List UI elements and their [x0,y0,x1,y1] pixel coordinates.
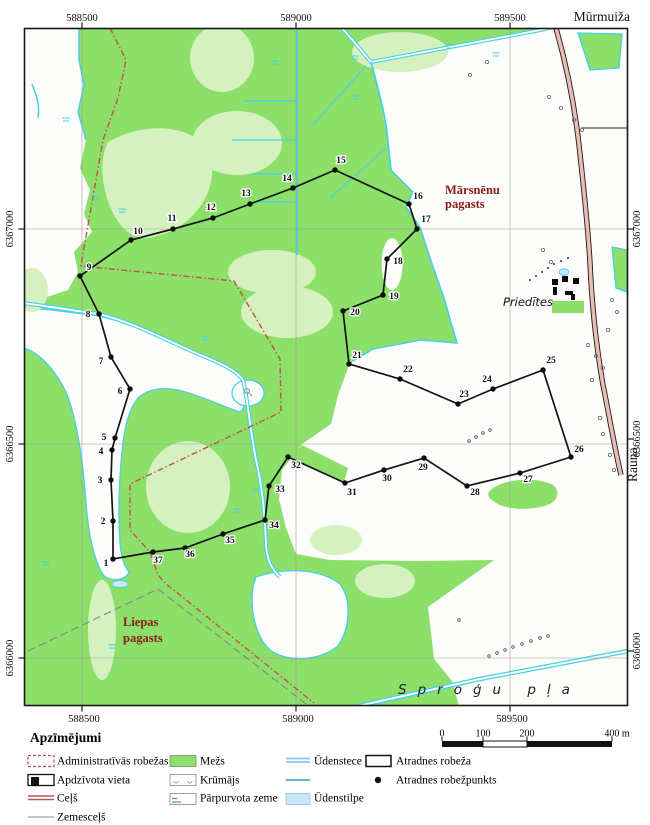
legend-label: Zemesceļš [57,812,106,824]
boundary-point-27 [517,470,522,475]
boundary-point-label-26: 26 [574,445,584,455]
boundary-point-8 [96,311,101,316]
boundary-point-label-16: 16 [413,192,423,202]
pond-south [112,581,128,588]
axis-label-left: 6367000 [5,211,16,248]
trail-dot [541,271,543,273]
trail-dot [553,263,555,265]
boundary-point-label-1: 1 [104,559,109,569]
boundary-point-6 [127,386,132,391]
boundary-point-34 [262,517,267,522]
place-label-sprogu-plava: Sproģu pļa [398,682,581,698]
legend-label: Atradnes robežpunkts [396,775,497,787]
legend-label: Atradnes robeža [396,756,471,768]
legend-label: Apdzīvota vieta [57,775,130,787]
boundary-point-25 [540,367,545,372]
scale-label: 0 [440,729,445,740]
boundary-point-label-27: 27 [523,475,533,485]
boundary-point-9 [77,273,82,278]
place-label-priedites: Priedītes [503,295,553,309]
boundary-point-21 [346,361,351,366]
scale-label-end: 400 m [604,729,630,740]
boundary-point-label-24: 24 [482,375,492,385]
axis-label-right: 6367000 [632,211,643,248]
boundary-point-15 [332,167,337,172]
boundary-point-32 [285,454,290,459]
boundary-point-20 [340,308,345,313]
boundary-point-label-35: 35 [225,536,235,546]
boundary-point-3 [108,477,113,482]
legend-label: Ceļš [57,793,78,805]
boundary-point-label-23: 23 [459,390,469,400]
shrub-swatch [170,775,196,786]
legend-label: Mežs [200,756,225,768]
boundary-point-16 [406,201,411,206]
boundary-point-label-13: 13 [241,189,251,199]
trail-dot [529,279,531,281]
boundary-point-5 [112,435,117,440]
scale-label: 100 [476,729,491,740]
axis-label-left: 6366500 [5,426,16,463]
boundary-point-label-19: 19 [389,292,399,302]
boundary-point-10 [128,237,133,242]
legend-label: Administratīvās robežas [57,756,169,768]
axis-label-bottom: 588500 [68,714,100,725]
map-svg: 1234567891011121314151617181920212223242… [0,0,650,825]
boundary-point-18 [384,256,389,261]
legend-texts: Administratīvās robežasApdzīvota vietaCe… [57,755,497,824]
boundary-point-26 [568,454,573,459]
clipped-place-labels: Sproģu pļa [398,682,581,698]
boundary-point-label-22: 22 [403,365,413,375]
boundary-point-label-33: 33 [275,485,285,495]
boundary-point-label-2: 2 [101,517,106,527]
boundary-point-11 [170,226,175,231]
boundary-point-23 [455,401,460,406]
waterbody-swatch [286,794,310,805]
forest-priedites [552,301,584,313]
boundary-point-28 [464,483,469,488]
boundary-point-4 [109,447,114,452]
map-page: 1234567891011121314151617181920212223242… [0,0,650,825]
boundary-point-7 [108,354,113,359]
settlement-square-icon [31,777,39,785]
legend-label: Pārpurvota zeme [200,793,278,805]
boundary-point-label-10: 10 [133,227,143,237]
legend-label: Ūdenstece [314,755,362,768]
forest-swatch [170,756,196,767]
legend: Apzīmējumi Administratīvās robežasApdzīv… [28,729,630,824]
axis-label-bottom: 589500 [496,714,528,725]
boundary-point-label-7: 7 [99,357,104,367]
boundary-point-24 [490,386,495,391]
pond-priedites [559,269,569,275]
axis-label-top: 588500 [66,13,98,24]
boundary-point-label-37: 37 [153,556,163,566]
boundary-point-label-34: 34 [269,521,279,531]
boundary-point-22 [397,376,402,381]
boundary-point-label-15: 15 [336,156,346,166]
boundary-point-label-17: 17 [421,215,431,225]
scale-bar: 0100200400 m [440,729,630,748]
boundary-point-label-30: 30 [382,474,392,484]
trail-dot [535,275,537,277]
boundary-point-label-8: 8 [86,310,91,320]
boundary-point-13 [247,201,252,206]
boundary-point-33 [266,483,271,488]
road-swatch [28,796,54,800]
boundary-point-label-21: 21 [352,351,362,361]
boundary-point-label-11: 11 [168,214,177,224]
boundary-point-label-29: 29 [418,463,428,473]
boundary-point-label-36: 36 [185,550,195,560]
boundary-point-12 [210,215,215,220]
boundary-point-label-20: 20 [350,308,360,318]
map-body: 1234567891011121314151617181920212223242… [16,24,628,706]
axis-label-right: 6366000 [632,633,643,670]
boundary-point-17 [414,226,419,231]
trail-dot [567,257,569,259]
boundary-point-label-31: 31 [347,488,357,498]
boundary-point-14 [290,185,295,190]
boundary-point-label-14: 14 [282,174,292,184]
boundary-point-label-12: 12 [206,203,216,213]
place-label-rauna: Rauna [625,448,640,483]
boundary-point-31 [342,480,347,485]
trail-dot [560,260,562,262]
trail-dot [547,267,549,269]
axis-label-left: 6366000 [5,640,16,677]
boundary-point-37 [150,549,155,554]
legend-label: Krūmājs [200,775,240,787]
scale-label: 200 [520,729,535,740]
deposit-point-swatch [375,777,381,783]
boundary-point-2 [110,518,115,523]
boundary-point-label-4: 4 [99,447,104,457]
boundary-point-label-18: 18 [393,257,403,267]
boundary-point-label-9: 9 [87,263,92,273]
boundary-point-29 [421,455,426,460]
axis-label-bottom: 589000 [282,714,314,725]
axis-label-top: 589500 [494,13,526,24]
boundary-point-label-3: 3 [98,476,103,486]
boundary-point-30 [381,467,386,472]
boundary-point-label-6: 6 [118,387,123,397]
boundary-point-label-5: 5 [102,433,107,443]
deposit-boundary-swatch [366,756,391,767]
field-south-pocket [252,571,348,659]
axis-label-top: 589000 [280,13,312,24]
boundary-point-label-32: 32 [291,461,301,471]
place-label-murmuiza: Mūrmuiža [574,9,630,24]
boundary-point-1 [110,556,115,561]
boundary-point-19 [380,292,385,297]
watercourse-swatch [286,759,310,763]
legend-title: Apzīmējumi [30,730,101,745]
legend-label: Ūdenstilpe [314,792,364,805]
admin-boundary-swatch [28,756,54,767]
boundary-point-label-25: 25 [546,356,556,366]
boundary-point-label-28: 28 [470,488,480,498]
